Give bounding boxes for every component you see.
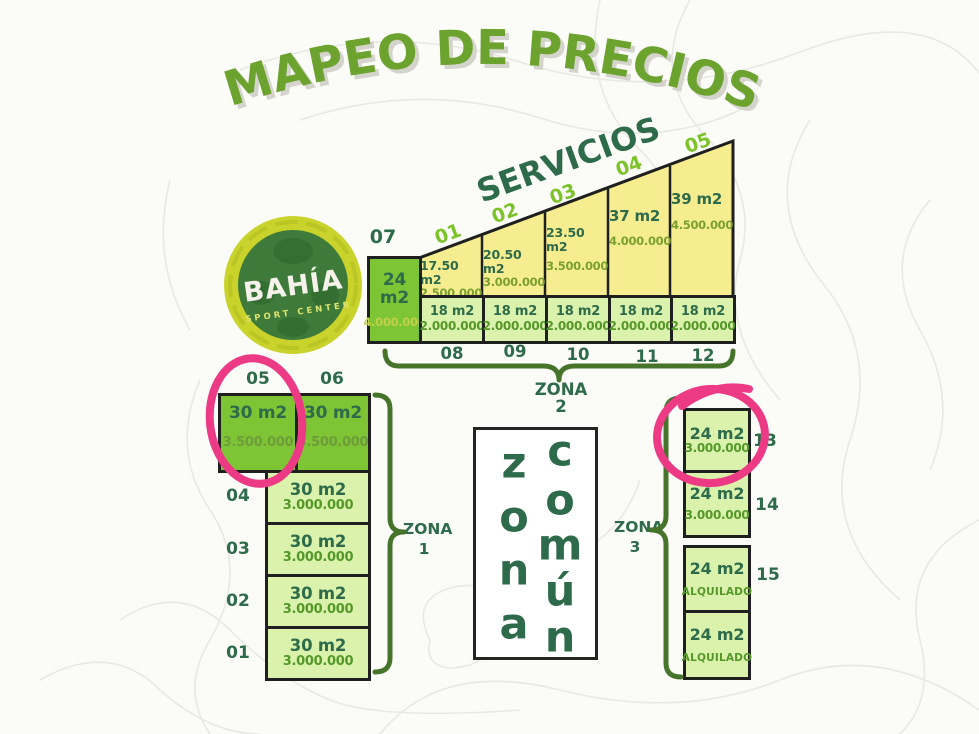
lot-size: 24 m2 [690, 626, 745, 644]
lot-size: 18 m2 [493, 305, 537, 319]
lot-01: 17.50 m2 2.500.000 [420, 259, 482, 300]
lot-03: 23.50 m2 3.500.000 [546, 226, 608, 273]
zona-comun-letter: c [547, 431, 573, 474]
zona3-lot-14: 24 m2 3.000.000 [683, 470, 751, 538]
lot-size: 24 m2 [690, 425, 745, 443]
lot-price: 3.000.000 [283, 499, 354, 514]
lot-size: 18 m2 [556, 305, 600, 319]
lot-08: 18 m2 2.000.000 [419, 295, 485, 344]
lot-price: 3.000.000 [685, 509, 750, 523]
zona1-lot-02: 30 m2 3.000.000 [265, 574, 371, 629]
zona3-label-number: 3 [614, 537, 656, 557]
zona-comun-letter: o [499, 497, 529, 540]
zona1-lot-04: 30 m2 3.000.000 [265, 470, 371, 525]
zona1-lot-03: 30 m2 3.000.000 [265, 522, 371, 577]
lot-size: 24 m2 [690, 560, 745, 578]
lot-status: ALQUILADO [682, 586, 752, 598]
lot-price: 3.000.000 [483, 276, 545, 289]
zona3-lot13-number: 13 [750, 433, 780, 450]
lot-size: 18 m2 [619, 305, 663, 319]
zona1-lot06-number: 06 [295, 371, 369, 388]
lot-12: 18 m2 2.000.000 [670, 295, 736, 344]
zona1-label-word: ZONA [403, 519, 445, 539]
zona1-lot03-number: 03 [220, 541, 256, 558]
zona-comun-letter: m [538, 525, 583, 568]
lot-size: 30 m2 [290, 637, 346, 655]
lot-size: 30 m2 [290, 585, 346, 603]
zona3-label: ZONA 3 [614, 517, 656, 557]
lot-size: 23.50 m2 [546, 226, 608, 254]
lot-size: 30 m2 [229, 404, 287, 423]
lot-size: 30 m2 [290, 481, 346, 499]
zona1-lot05-number: 05 [220, 371, 296, 388]
lot-10: 18 m2 2.000.000 [545, 295, 611, 344]
lot-price: 3.000.000 [283, 603, 354, 618]
lot-size: 17.50 m2 [420, 259, 482, 287]
zona3-lot14-number: 14 [752, 497, 782, 514]
lot-price: 2.000.000 [546, 320, 611, 334]
zona-comun-letter: ú [545, 571, 576, 614]
lot-size: 24 m2 [370, 271, 419, 308]
lot-11: 18 m2 2.000.000 [608, 295, 674, 344]
lot-size: 20.50 m2 [483, 248, 545, 276]
lot-price: 3.500.000 [223, 436, 294, 451]
lot-price: 3.500.000 [298, 436, 369, 451]
price-map-poster: MAPEO DE PRECIOS MAPEO DE PRECIOS BAHÍA … [0, 0, 979, 734]
lot-price: 2.000.000 [483, 320, 548, 334]
lot-08-number: 08 [419, 346, 485, 363]
lot-size: 37 m2 [609, 208, 671, 225]
zona3-lot-15: 24 m2 ALQUILADO [683, 545, 751, 613]
lot-price: 2.000.000 [671, 320, 736, 334]
lot-price: 3.500.000 [546, 260, 608, 273]
lot-price: 3.000.000 [685, 442, 750, 456]
zona1-lot-01: 30 m2 3.000.000 [265, 626, 371, 681]
lot-size: 18 m2 [681, 305, 725, 319]
lot-price: 4.500.000 [671, 219, 733, 232]
lot-02: 20.50 m2 3.000.000 [483, 248, 545, 289]
zona1-lot-06: 30 m2 3.500.000 [295, 393, 371, 473]
zona-comun-box: z o n a c o m ú n [473, 427, 598, 660]
zona3-lot-16: 24 m2 ALQUILADO [683, 610, 751, 680]
zona3-lot-13: 24 m2 3.000.000 [683, 408, 751, 473]
zona1-lot-05: 30 m2 3.500.000 [218, 393, 298, 473]
zona-comun-letter: z [501, 443, 526, 486]
lot-size: 18 m2 [430, 305, 474, 319]
lot-12-number: 12 [670, 348, 736, 365]
lot-size: 30 m2 [304, 404, 362, 423]
lot-price: 3.000.000 [283, 655, 354, 670]
lot-04: 37 m2 4.000.000 [609, 208, 671, 248]
lot-09: 18 m2 2.000.000 [482, 295, 548, 344]
lot-09-number: 09 [482, 344, 548, 361]
lot-price: 4.000.000 [609, 235, 671, 248]
lot-10-number: 10 [545, 347, 611, 364]
lot-size: 24 m2 [690, 485, 745, 503]
zona1-lot02-number: 02 [220, 593, 256, 610]
zona-comun-letter: n [545, 617, 576, 660]
lot-05-servicios: 39 m2 4.500.000 [671, 191, 733, 232]
zona3-lot15-number: 15 [753, 567, 783, 584]
zona1-label: ZONA 1 [403, 519, 445, 559]
lot-status: ALQUILADO [682, 652, 752, 664]
zona1-label-number: 1 [403, 539, 445, 559]
lot-size: 39 m2 [671, 191, 733, 208]
lot-price: 4.000.000 [363, 316, 425, 329]
zona-comun-letter: n [499, 550, 530, 593]
zona2-label: ZONA 2 [528, 382, 594, 415]
lot-price: 3.000.000 [283, 551, 354, 566]
zona1-lot01-number: 01 [220, 645, 256, 662]
lot-07-number: 07 [363, 228, 403, 247]
zona1-lot04-number: 04 [220, 488, 256, 505]
zona3-label-word: ZONA [614, 517, 656, 537]
lot-size: 30 m2 [290, 533, 346, 551]
lot-price: 2.000.000 [609, 320, 674, 334]
zona-comun-letter: o [545, 480, 575, 523]
lot-price: 2.000.000 [420, 320, 485, 334]
lot-07: 24 m2 4.000.000 [367, 256, 422, 344]
zona-comun-letter: a [499, 604, 528, 647]
